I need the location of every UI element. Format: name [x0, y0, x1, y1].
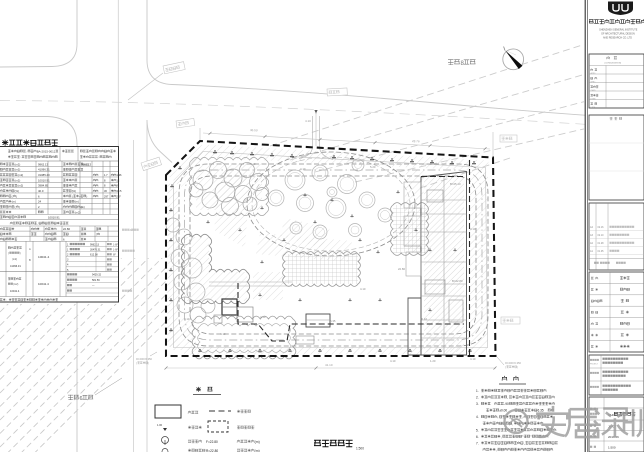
- svg-text:10010.91: 10010.91: [48, 215, 60, 219]
- svg-text:9962.13: 9962.13: [90, 243, 100, 246]
- svg-text:(CONSULTATION): (CONSULTATION): [604, 62, 621, 65]
- svg-text:1:500: 1:500: [608, 446, 616, 450]
- svg-text:): ): [517, 365, 518, 369]
- svg-text:5.20: 5.20: [370, 165, 376, 169]
- svg-text:): ): [148, 361, 149, 365]
- svg-text:10041.4: 10041.4: [10, 289, 20, 293]
- svg-text:BA-2015-0012: BA-2015-0012: [37, 150, 56, 154]
- svg-text:10010.91: 10010.91: [38, 178, 50, 182]
- svg-text:A: A: [29, 247, 31, 251]
- svg-text:41096.31: 41096.31: [10, 264, 21, 268]
- svg-text:": ": [530, 435, 531, 439]
- svg-text:(%): (%): [15, 189, 19, 193]
- svg-text:4.10: 4.10: [470, 357, 476, 361]
- svg-text:4.10: 4.10: [260, 315, 266, 319]
- svg-text:±0.000=6.350: ±0.000=6.350: [136, 357, 152, 361]
- svg-text:(m2): (m2): [15, 162, 21, 166]
- svg-text:7.: 7.: [476, 441, 479, 445]
- svg-text:36.50: 36.50: [250, 128, 258, 132]
- svg-text:-90: -90: [504, 402, 509, 406]
- svg-text:): ): [19, 205, 20, 209]
- svg-text:2016.06: 2016.06: [608, 435, 619, 439]
- svg-text:41.10: 41.10: [325, 363, 333, 367]
- svg-text:,: ,: [507, 396, 508, 400]
- svg-text:22.80: 22.80: [398, 267, 405, 271]
- svg-text:4.10: 4.10: [390, 359, 396, 363]
- svg-text:4.10: 4.10: [220, 332, 226, 336]
- svg-text:(: (: [136, 361, 137, 365]
- svg-text:6.35: 6.35: [330, 319, 336, 323]
- svg-text:4.10: 4.10: [470, 227, 476, 231]
- svg-text:EXMD: EXMD: [591, 99, 597, 101]
- svg-text:581.59: 581.59: [92, 279, 100, 282]
- svg-text:(m2): (m2): [17, 173, 23, 177]
- svg-text:(: (: [505, 365, 506, 369]
- svg-text:±0.00: ±0.00: [499, 409, 507, 413]
- svg-text:,: ,: [524, 441, 525, 445]
- svg-text:": ": [522, 435, 523, 439]
- svg-text:612.08: 612.08: [90, 254, 98, 257]
- svg-text:1.: 1.: [476, 389, 479, 393]
- svg-text:B=25.10: B=25.10: [450, 182, 461, 186]
- svg-text:,: ,: [522, 415, 523, 419]
- svg-text:4.10: 4.10: [360, 287, 366, 291]
- svg-text:9962.13: 9962.13: [81, 162, 92, 166]
- svg-text:(m2): (m2): [15, 178, 21, 182]
- svg-text:OF ARCHITECTURAL DESIGN: OF ARCHITECTURAL DESIGN: [601, 33, 635, 36]
- svg-text:9429.32: 9429.32: [92, 274, 102, 277]
- svg-text:1.36: 1.36: [116, 173, 122, 177]
- svg-text:DATE: DATE: [591, 106, 596, 109]
- svg-text:AND RESEARCH CO.,LTD: AND RESEARCH CO.,LTD: [603, 37, 632, 40]
- svg-text:,: ,: [497, 415, 498, 419]
- svg-text:(m2): (m2): [15, 168, 21, 172]
- svg-text:,: ,: [512, 422, 513, 426]
- svg-text:4.10: 4.10: [305, 119, 311, 123]
- svg-text:28.76: 28.76: [412, 139, 420, 143]
- svg-text:): ): [86, 194, 87, 198]
- svg-text:(: (: [15, 205, 16, 209]
- svg-text:10.10: 10.10: [420, 317, 427, 321]
- svg-text:B: B: [29, 258, 31, 262]
- svg-text:01.05: 01.05: [598, 250, 605, 253]
- svg-text:1.7: 1.7: [104, 173, 108, 177]
- svg-text:,: ,: [501, 435, 502, 439]
- svg-text:(m): (m): [255, 440, 260, 444]
- svg-text:01.28: 01.28: [598, 242, 605, 245]
- svg-text:6.: 6.: [476, 435, 479, 439]
- svg-text:,: ,: [496, 448, 497, 452]
- svg-text:(: (: [72, 194, 73, 198]
- svg-text:24: 24: [38, 200, 42, 204]
- svg-text:6: 6: [79, 396, 82, 402]
- svg-text:±0.000=6.350: ±0.000=6.350: [505, 361, 521, 365]
- svg-text:F=22.80: F=22.80: [206, 440, 218, 444]
- svg-text:41096.31: 41096.31: [38, 168, 50, 172]
- svg-text:1:500: 1:500: [356, 447, 364, 451]
- svg-text:30.5: 30.5: [116, 189, 122, 193]
- svg-text:1.00: 1.00: [157, 423, 163, 427]
- svg-text:CHKD: CHKD: [591, 90, 597, 92]
- svg-text:(m2): (m2): [13, 283, 18, 286]
- svg-text:9962.13: 9962.13: [38, 162, 49, 166]
- svg-text:4.10: 4.10: [300, 167, 306, 171]
- svg-text:1.20: 1.20: [430, 359, 436, 363]
- svg-text:SHENZHEN GENERAL INSTITUTE: SHENZHEN GENERAL INSTITUTE: [599, 29, 638, 32]
- svg-text:4.10: 4.10: [250, 162, 256, 166]
- svg-text:(: (: [12, 194, 13, 198]
- svg-text:): ): [16, 194, 17, 198]
- svg-text:297: 297: [104, 194, 109, 198]
- svg-text:6.35: 6.35: [538, 409, 544, 413]
- svg-text:22.80: 22.80: [63, 227, 70, 231]
- svg-text:(m): (m): [75, 200, 79, 204]
- svg-text:4.: 4.: [476, 415, 479, 419]
- svg-text:1-6F: 1-6F: [113, 248, 118, 251]
- svg-text:1-6F: 1-6F: [113, 243, 118, 246]
- svg-text:02.10: 02.10: [598, 234, 605, 237]
- svg-text:02.16: 02.16: [598, 226, 605, 229]
- svg-text:(m2): (m2): [12, 258, 17, 261]
- svg-text:10041.4: 10041.4: [38, 255, 49, 259]
- svg-text:3984.85: 3984.85: [38, 184, 49, 188]
- svg-text:PROJECT: PROJECT: [590, 364, 598, 366]
- svg-text:SPEC: SPEC: [591, 82, 597, 84]
- svg-text:10041.4: 10041.4: [38, 282, 49, 286]
- svg-text:31085.40: 31085.40: [38, 173, 50, 177]
- svg-text:5.: 5.: [476, 428, 479, 432]
- svg-text:(%): (%): [72, 189, 76, 193]
- svg-text:(m2): (m2): [75, 210, 81, 214]
- svg-text:30476.31: 30476.31: [90, 248, 101, 251]
- svg-text:APPD: APPD: [591, 72, 597, 75]
- svg-text:(m): (m): [12, 200, 16, 204]
- svg-text:2.: 2.: [476, 396, 479, 400]
- svg-text:40.0: 40.0: [38, 189, 44, 193]
- svg-text:B=22.80: B=22.80: [452, 279, 463, 283]
- svg-text:4.10: 4.10: [184, 317, 190, 321]
- svg-text:3.: 3.: [476, 402, 479, 406]
- svg-text:(m2): (m2): [17, 184, 23, 188]
